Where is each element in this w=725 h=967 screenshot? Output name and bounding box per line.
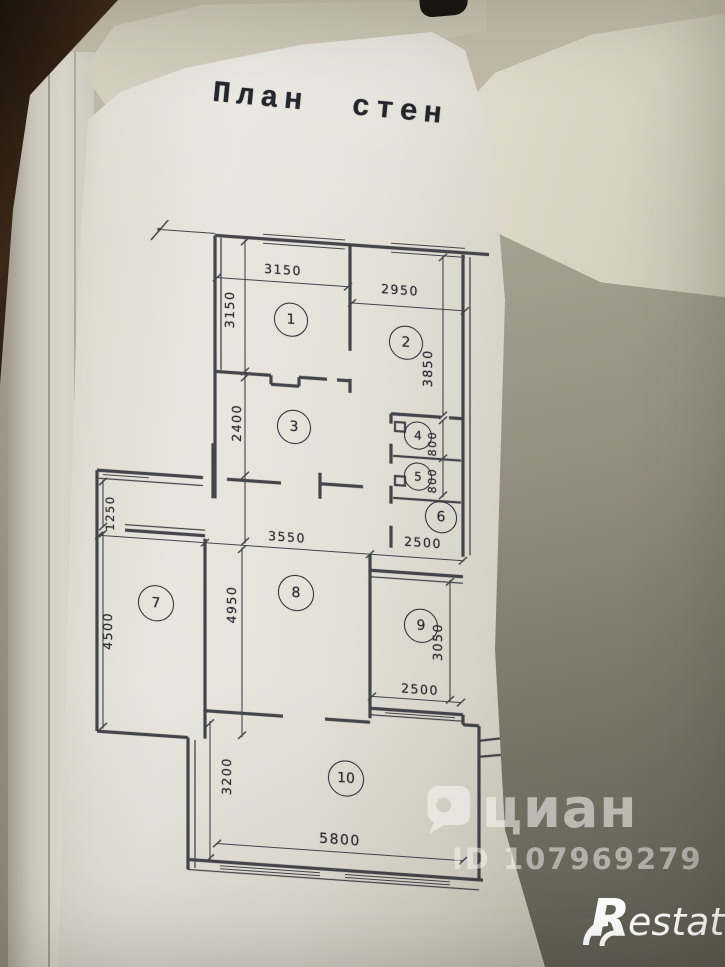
dimension-dot (157, 228, 160, 232)
dimension-label: 3850 (421, 338, 435, 399)
cian-pin-icon (424, 783, 472, 835)
page-edge-line (48, 52, 50, 967)
room-number: 4 (414, 428, 422, 443)
room-number: 7 (152, 595, 161, 612)
room-number: 1 (287, 311, 296, 328)
room-number: 10 (337, 770, 355, 787)
dimension-label: 1250 (103, 483, 117, 544)
dimension-label: 800 (426, 450, 440, 511)
room-number: 6 (437, 509, 446, 526)
room-number: 8 (292, 585, 301, 602)
restate-logo: R estate (548, 896, 725, 943)
cian-watermark: циан (424, 782, 638, 836)
photo-of-floor-plan-page: План стен (0, 0, 725, 967)
dimension-label: 2400 (230, 392, 244, 453)
drawing-title: План стен (211, 77, 449, 133)
watermark-listing-id: ID 107969279 (452, 842, 703, 876)
restate-estate: estate (628, 903, 725, 943)
dimension-label: 4500 (101, 600, 115, 661)
dimension-label: 3150 (223, 279, 237, 340)
dimension-label: 4950 (225, 574, 239, 635)
room-number: 2 (402, 334, 411, 351)
room-number: 9 (417, 617, 426, 634)
dimension-label: 3050 (431, 611, 445, 672)
dimension-label: 3200 (220, 746, 234, 807)
signal-arcs-icon (582, 917, 624, 947)
room-number: 5 (414, 469, 422, 484)
room-number: 3 (290, 419, 299, 436)
watermark-brand: циан (482, 782, 638, 836)
dimension-label: 5800 (310, 831, 370, 849)
